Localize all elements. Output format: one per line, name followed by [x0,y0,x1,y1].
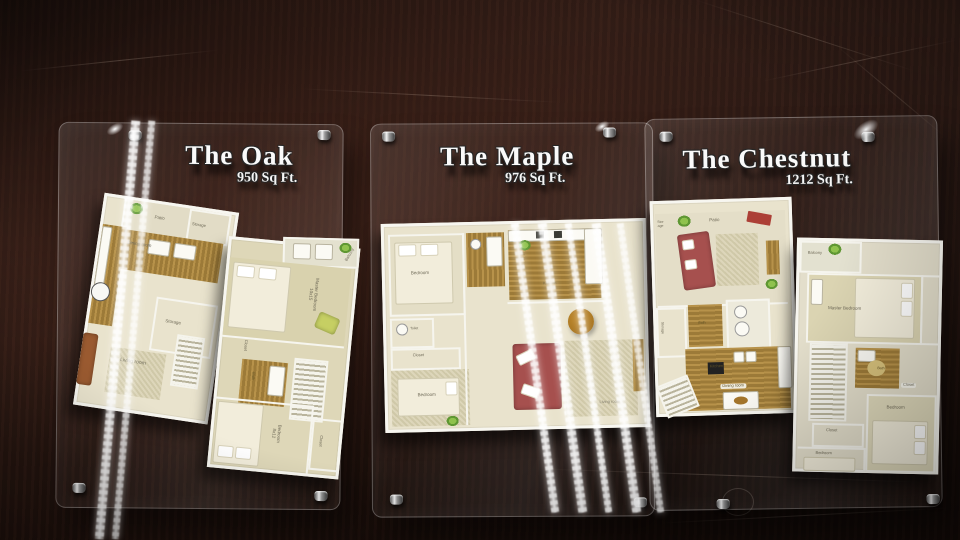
wood-scratch [762,39,958,82]
room-label: Bath [250,372,255,381]
room-label: Bedroom [418,392,436,398]
pillow [684,259,697,271]
rug [716,233,760,286]
stairs [170,334,205,390]
panel-title: The Oak [185,140,294,172]
washer [733,351,744,362]
closet [391,347,461,371]
interior-wall [507,300,603,304]
pillow [217,445,234,458]
kitchen-counter [777,346,792,388]
room-label: Patio [709,217,719,222]
room-label: Closet [413,353,424,358]
room-label: Living room [590,399,630,405]
room-label: Bath [698,321,705,325]
bathtub [486,236,503,266]
room-label: Bedroom [816,451,832,456]
room-label: Closet [242,339,248,351]
pillow [398,244,416,256]
bathtub [267,365,286,396]
console [632,339,644,391]
room-label: Bedroom [411,270,429,276]
dining-table [723,391,760,410]
stairs [808,343,848,422]
pillow [515,348,536,366]
standoff-screw [314,491,327,501]
panel-sqft: 976 Sq Ft. [505,171,565,187]
dresser [811,279,824,305]
wood-scratch [20,50,219,72]
appliance [554,231,562,238]
standoff-screw [390,495,403,505]
bed [803,457,855,472]
pillow [900,301,912,317]
bath-floor [466,232,505,287]
panel-the-maple: The Maple 976 Sq Ft. Bedroom Toilet Clos… [370,122,655,517]
room-label: Closet [901,383,916,388]
closet-strip [920,275,941,345]
sink [734,321,749,336]
room-label: Closet [826,428,837,433]
room-label: Bedroom [886,404,904,410]
room-label: Toilet [410,326,418,330]
pillow [901,283,913,299]
plant [518,240,531,251]
panel-sqft: 950 Sq Ft. [237,170,297,187]
standoff-screw [129,130,142,140]
toilet [470,239,481,250]
room-label: Closet [318,435,324,447]
chestnut-first-floor-plan: Stor age Patio Storage Bath Kitchen Dini… [650,197,799,417]
pillow [235,447,252,460]
appliance [536,231,544,238]
toilet [734,305,747,318]
pillow [682,239,695,251]
oak-second-floor-plan: Balcony Master Bedroom 10x15 Closet Bath… [207,236,361,480]
room-label: Kitchen [543,281,556,286]
room-label: Bedroom 8x12 [270,424,282,443]
panel-title: The Chestnut [682,142,851,175]
pillow [914,441,926,455]
plant [765,278,778,289]
standoff-screw [634,497,647,507]
round-table [568,308,595,335]
pillow [914,425,926,439]
room-label: Stor age [657,220,664,228]
wood-scratch [300,88,560,103]
room-label: Storage [660,322,664,334]
pillow [236,265,255,279]
pillow [258,267,277,281]
panel-the-chestnut: The Chestnut 1212 Sq Ft. Stor age Patio … [644,115,942,511]
plant [828,243,842,255]
bath-floor [688,304,723,347]
room-label: Balcony [808,251,822,256]
photo-of-floorplan-display-panels: { "panels": [ { "title": "The Oak", "sqf… [0,0,960,540]
pillow [445,381,457,395]
pillow [520,383,541,399]
panel-title: The Maple [440,141,574,173]
dryer [745,351,756,362]
lounge-chair [293,243,311,259]
standoff-screw [927,494,940,504]
toilet-room [726,299,772,350]
maple-floor-plan: Bedroom Toilet Closet Bedroom Kitchen [381,218,651,433]
living-rug [564,339,638,417]
panel-sqft: 1212 Sq Ft. [785,172,853,189]
pillow [420,244,438,256]
standoff-screw [861,132,874,142]
standoff-screw [318,130,331,140]
room-label: Dining room [720,383,746,388]
lounge-chair [315,244,333,260]
room-label: Bath [877,366,884,370]
rug [104,346,166,400]
closet-room [812,423,864,448]
centerpiece [734,396,748,404]
plant [129,202,145,216]
chestnut-second-floor-plan: Balcony Master Bedroom Bath Closet Close… [792,237,943,474]
standoff-screw [72,483,85,493]
kitchen-floor [508,228,602,300]
sofa [76,332,99,386]
standoff-screw [382,132,395,142]
plant [677,215,691,227]
sofa [512,343,561,410]
tv-cabinet [766,240,780,274]
dining-table [173,243,197,261]
kitchen-counter [584,228,603,284]
plant [446,415,459,426]
room-label: Kitchen [710,364,723,369]
standoff-screw [659,132,672,142]
room-label: Master Bedroom [823,305,867,311]
closet [308,418,343,473]
panel-the-oak: The Oak 950 Sq Ft. Patio Storage Dining … [55,122,343,510]
wood-scratch [695,0,914,72]
standoff-screw [603,127,616,137]
standoff-screw [717,499,730,509]
